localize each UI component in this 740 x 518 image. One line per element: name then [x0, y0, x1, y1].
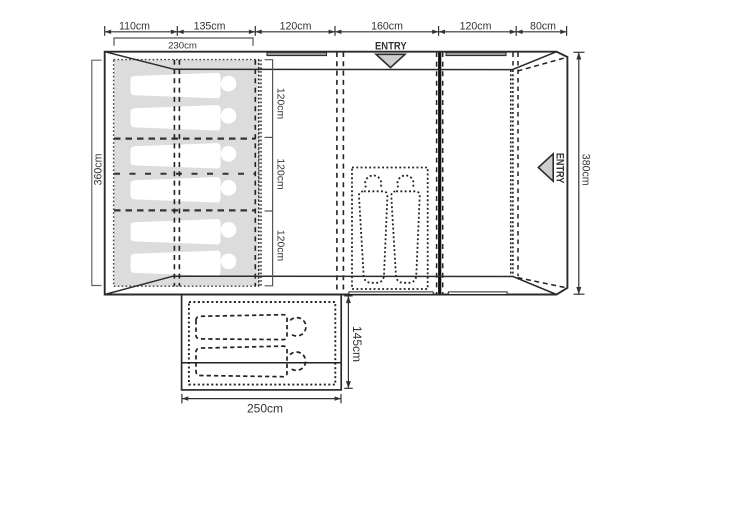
svg-text:120cm: 120cm — [460, 20, 492, 32]
svg-text:80cm: 80cm — [530, 20, 556, 32]
svg-text:120cm: 120cm — [275, 230, 286, 261]
svg-text:250cm: 250cm — [247, 402, 283, 416]
svg-text:380cm: 380cm — [579, 154, 591, 186]
svg-text:160cm: 160cm — [371, 20, 403, 32]
svg-text:360cm: 360cm — [92, 153, 104, 185]
svg-text:145cm: 145cm — [350, 326, 364, 362]
svg-text:120cm: 120cm — [275, 88, 286, 119]
svg-text:120cm: 120cm — [275, 158, 286, 189]
svg-text:ENTRY: ENTRY — [553, 153, 565, 184]
svg-text:120cm: 120cm — [280, 20, 312, 32]
svg-text:135cm: 135cm — [194, 20, 226, 32]
svg-text:230cm: 230cm — [168, 41, 197, 52]
svg-text:110cm: 110cm — [119, 20, 150, 32]
svg-text:ENTRY: ENTRY — [375, 41, 407, 53]
